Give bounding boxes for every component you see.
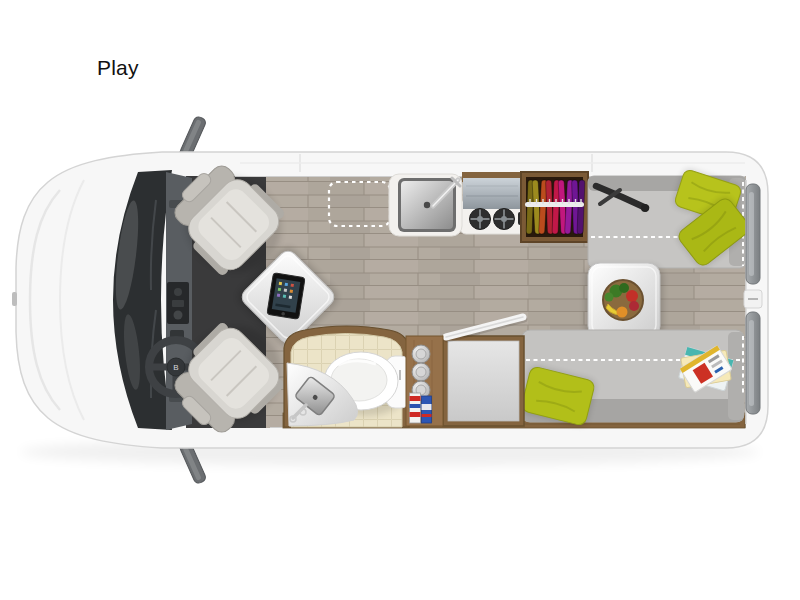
pantry-box-icon [410, 393, 421, 423]
steering-wheel-badge: B [173, 363, 178, 372]
rear-sofa-bottom [519, 330, 744, 428]
canister-icon [412, 363, 430, 381]
floorplan-page: Play [0, 0, 800, 600]
fruit-bowl-icon [603, 280, 643, 320]
magazines-icon [679, 345, 734, 392]
floorplan-image: B [0, 0, 800, 600]
burner-icon [470, 209, 491, 230]
kitchen-sink [398, 178, 456, 232]
pantry-box-icon [422, 396, 432, 423]
rear-doors [744, 180, 762, 424]
burner-icon [494, 209, 515, 230]
storage-shelf [406, 336, 443, 426]
bathroom [284, 326, 443, 427]
canister-icon [412, 345, 430, 363]
wardrobe [521, 172, 588, 242]
tablet [267, 273, 305, 319]
